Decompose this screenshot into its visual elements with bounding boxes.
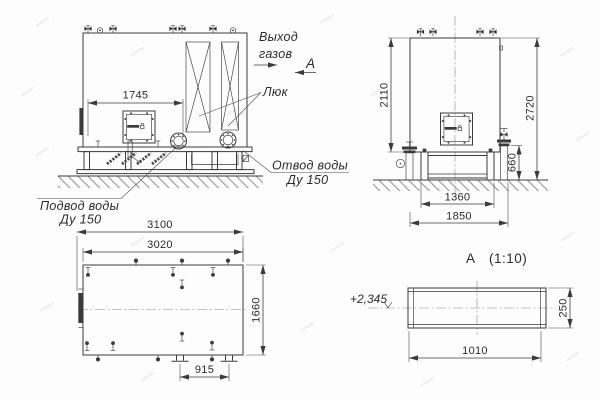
- base-pedestal: [421, 149, 494, 180]
- manhole-hatch-icon: [123, 111, 155, 143]
- pin-icon: [96, 355, 100, 362]
- dim-915: 915: [180, 364, 229, 381]
- boiler-assembly-drawing: 1745 Выход газов А Люк Отвод воды Ду 150…: [0, 0, 600, 400]
- pin-icon: [226, 259, 230, 266]
- pin-icon: [210, 355, 214, 362]
- lifting-lug-icon: [97, 28, 102, 33]
- valve-icon: [109, 26, 116, 34]
- plan-view: 3100 3020 1660 915: [77, 219, 266, 381]
- svg-text:Ду 150: Ду 150: [285, 173, 328, 187]
- front-view: 1745 Выход газов А Люк Отвод воды Ду 150…: [37, 26, 349, 227]
- pin-icon: [211, 268, 216, 277]
- side-view: 2110 2720 660 1360 1850: [373, 16, 548, 227]
- svg-text:Подвод воды: Подвод воды: [40, 199, 119, 213]
- dim-text-915: 915: [195, 364, 214, 376]
- manhole-hatch-icon: [441, 113, 473, 145]
- dim-1660: 1660: [246, 265, 266, 355]
- front-flange-bar: [78, 293, 83, 323]
- pin-icon: [180, 280, 185, 289]
- gas-outlet-label: Выход газов: [254, 30, 298, 65]
- svg-text:газов: газов: [259, 47, 293, 61]
- anchor-pins: [85, 259, 230, 362]
- water-inlet-flange-icon: [171, 133, 187, 149]
- detail-view-label: А: [466, 251, 476, 266]
- pin-icon: [134, 259, 138, 266]
- detail-view-scale: (1:10): [489, 251, 527, 266]
- pin-icon: [111, 341, 116, 350]
- dim-text-1745: 1745: [123, 90, 149, 102]
- under-frame-piping: [107, 153, 166, 164]
- technical-drawing-canvas: 1745 Выход газов А Люк Отвод воды Ду 150…: [0, 0, 600, 400]
- dim-text-660: 660: [507, 153, 519, 172]
- detail-view-a: А (1:10) +2,345 250 1010: [350, 251, 573, 362]
- side-flange-bar: [79, 108, 83, 135]
- gas-duct-opening-1: [186, 42, 210, 132]
- dim-text-1360: 1360: [445, 192, 471, 204]
- gas-duct-opening-2: [222, 42, 239, 130]
- elevation-value: +2,345: [350, 292, 387, 306]
- boiler-body-plan: [83, 265, 243, 355]
- dim-text-1660: 1660: [251, 297, 263, 323]
- dim-3100: 3100: [77, 219, 243, 291]
- dim-text-3100: 3100: [147, 219, 173, 231]
- roof-fittings: [84, 26, 235, 34]
- valve-icon: [209, 26, 216, 34]
- pin-icon: [171, 268, 176, 277]
- dim-1745: 1745: [88, 90, 183, 137]
- pin-icon: [156, 355, 160, 362]
- dim-text-3020: 3020: [147, 239, 173, 251]
- hatch-label: Люк: [199, 85, 289, 126]
- dim-660: 660: [507, 146, 523, 181]
- dim-3020: 3020: [83, 239, 243, 262]
- dim-text-1850: 1850: [446, 211, 472, 223]
- valve-assembly-left: [396, 142, 417, 180]
- valve-icon: [489, 29, 496, 37]
- dim-text-250: 250: [558, 298, 570, 317]
- condensate-tray: [192, 154, 239, 165]
- dim-text-1010: 1010: [462, 345, 488, 357]
- pin-icon: [180, 332, 185, 341]
- dim-text-2720: 2720: [525, 95, 537, 121]
- valve-icon: [417, 29, 424, 37]
- svg-text:Люк: Люк: [262, 85, 289, 99]
- dim-text-2110: 2110: [379, 83, 391, 108]
- svg-text:Ду 150: Ду 150: [58, 213, 101, 227]
- support-foot: [221, 355, 238, 361]
- valve-icon: [169, 26, 176, 34]
- water-outlet-flange-icon: [220, 132, 236, 148]
- ground-hatch: [58, 177, 263, 189]
- pin-icon: [86, 268, 91, 277]
- support-frame: [77, 147, 254, 174]
- elevation-mark: +2,345: [350, 292, 392, 308]
- svg-text:Отвод воды: Отвод воды: [272, 159, 348, 173]
- pin-icon: [85, 341, 90, 350]
- pin-icon: [180, 259, 184, 266]
- valve-icon: [84, 26, 91, 34]
- dim-2110: 2110: [379, 38, 410, 152]
- pin-icon: [210, 341, 215, 350]
- support-foot: [172, 355, 189, 361]
- roof-fittings-side: [417, 29, 497, 37]
- valve-icon: [429, 29, 436, 37]
- valve-icon: [476, 29, 483, 37]
- ground-hatch: [373, 181, 548, 192]
- svg-text:Выход: Выход: [259, 30, 298, 44]
- lifting-lug-icon: [230, 28, 235, 33]
- dim-1010: 1010: [409, 331, 541, 362]
- section-a-mark: А: [295, 56, 316, 73]
- valve-icon: [178, 26, 185, 34]
- svg-text:А: А: [305, 56, 315, 71]
